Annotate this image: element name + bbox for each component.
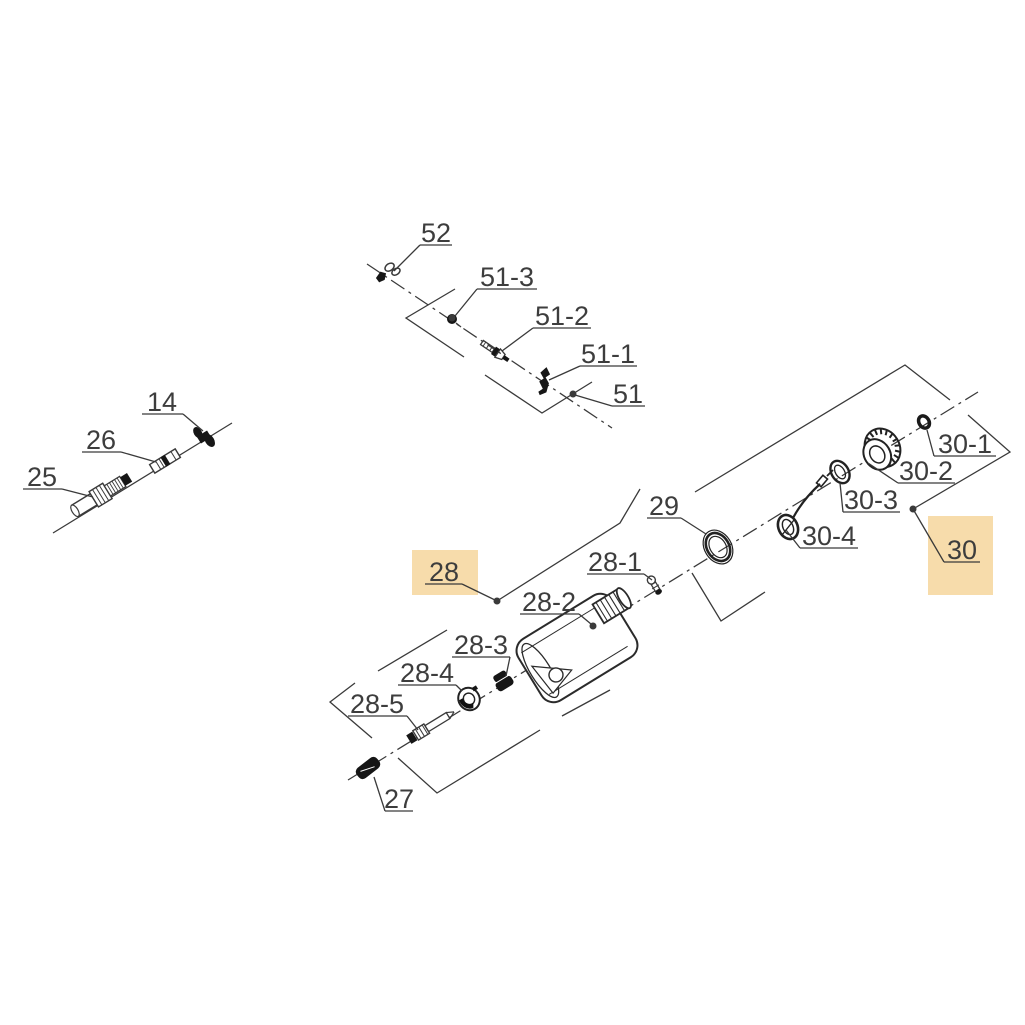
label-text-28: 28: [429, 557, 459, 587]
leader-dot-28-2: [590, 623, 597, 630]
label-text-30-4: 30-4: [802, 521, 856, 551]
label-text-28-5: 28-5: [350, 689, 404, 719]
label-text-30: 30: [947, 535, 977, 565]
leader-dot-51-3: [449, 315, 456, 322]
label-text-25: 25: [27, 462, 57, 492]
label-text-28-3: 28-3: [454, 630, 508, 660]
exploded-parts-diagram: 5251-351-251-1511426252928-128-22828-328…: [0, 0, 1025, 1025]
label-text-26: 26: [86, 425, 116, 455]
leader-dot-51: [570, 391, 577, 398]
label-text-14: 14: [147, 387, 177, 417]
label-text-52: 52: [421, 218, 451, 248]
part-label-30-1: 30-1: [927, 429, 996, 459]
label-text-28-1: 28-1: [588, 547, 642, 577]
label-text-27: 27: [384, 784, 414, 814]
label-text-28-2: 28-2: [522, 587, 576, 617]
label-text-29: 29: [649, 491, 679, 521]
leader-dot-28: [494, 598, 501, 605]
label-text-30-1: 30-1: [938, 429, 992, 459]
label-text-51-1: 51-1: [581, 339, 635, 369]
label-text-51: 51: [613, 379, 643, 409]
leader-dot-30: [910, 506, 917, 513]
label-text-30-3: 30-3: [844, 485, 898, 515]
label-text-51-2: 51-2: [535, 301, 589, 331]
label-text-28-4: 28-4: [400, 658, 454, 688]
label-text-51-3: 51-3: [480, 262, 534, 292]
label-text-30-2: 30-2: [899, 456, 953, 486]
part-label-28-4: 28-4: [398, 658, 462, 691]
part-label-30-3: 30-3: [840, 483, 900, 515]
diagram-svg: 5251-351-251-1511426252928-128-22828-328…: [0, 0, 1025, 1025]
